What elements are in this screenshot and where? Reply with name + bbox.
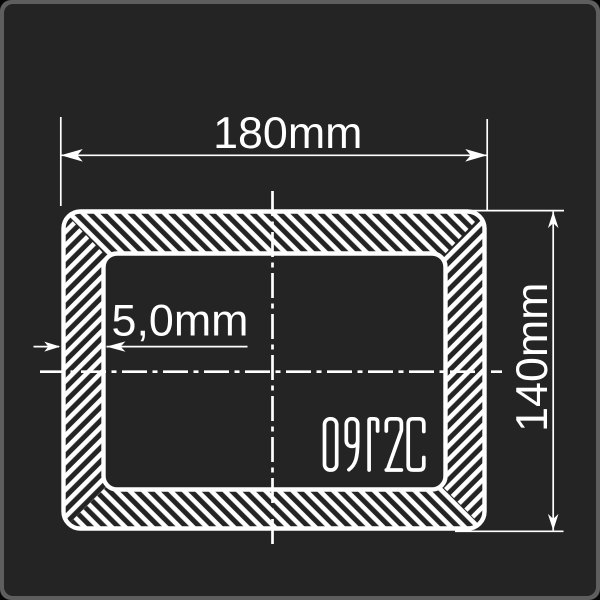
svg-text:140mm: 140mm <box>507 283 557 432</box>
svg-text:180mm: 180mm <box>213 108 362 158</box>
svg-text:5,0mm: 5,0mm <box>112 295 249 345</box>
